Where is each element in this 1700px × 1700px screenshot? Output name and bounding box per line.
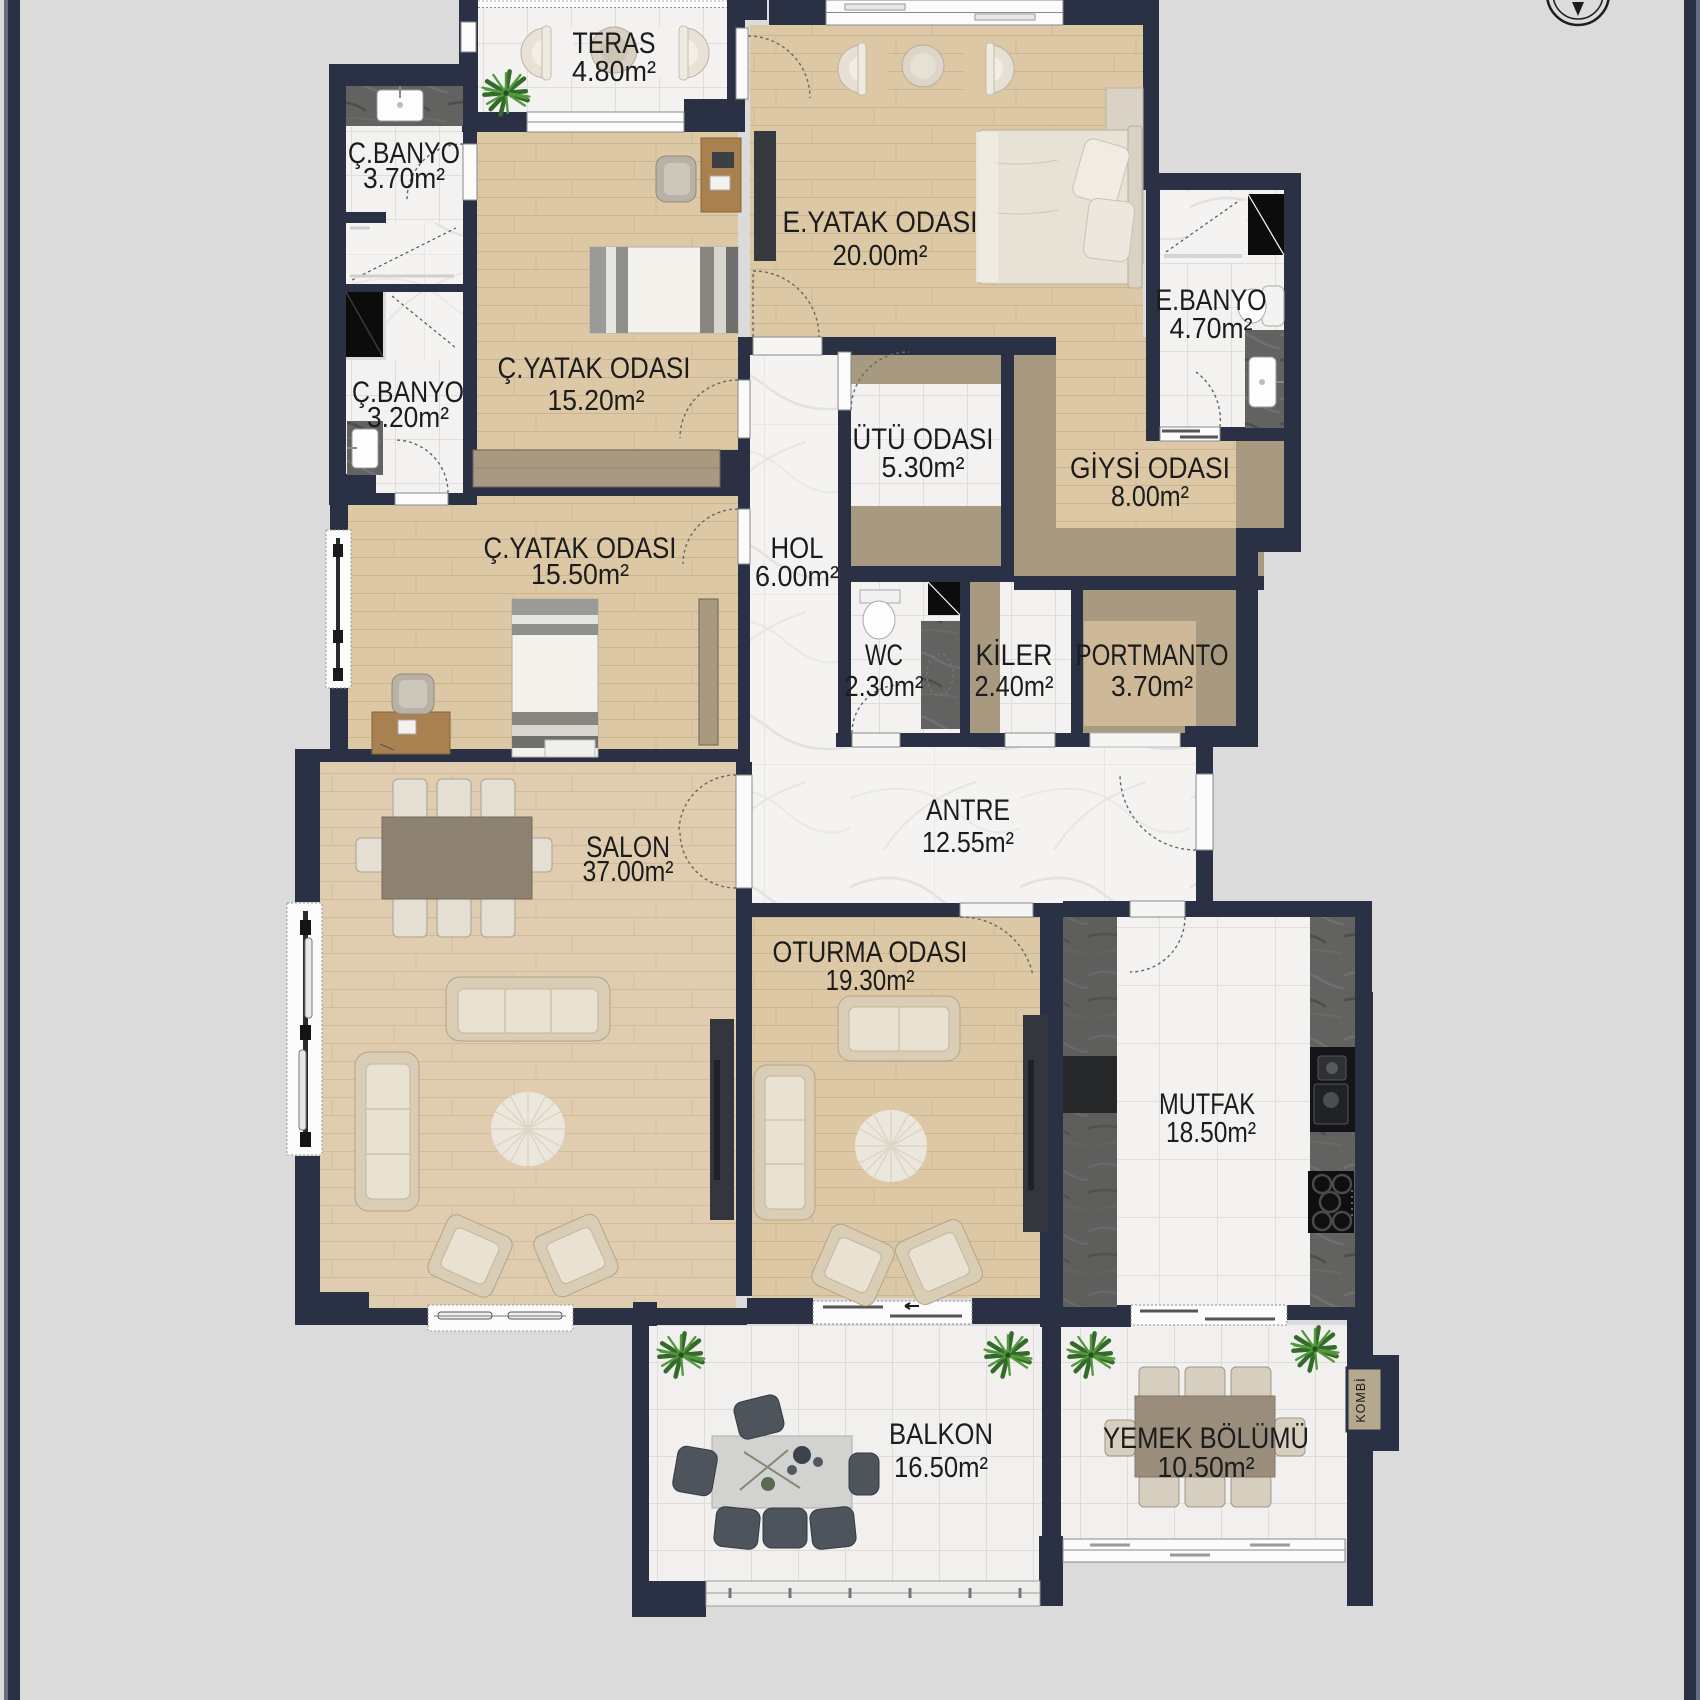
svg-text:37.00m²: 37.00m²: [583, 856, 674, 888]
svg-text:4.80m²: 4.80m²: [572, 56, 656, 88]
svg-text:WC: WC: [865, 639, 903, 672]
svg-text:15.20m²: 15.20m²: [548, 385, 645, 417]
svg-text:3.20m²: 3.20m²: [367, 402, 449, 434]
svg-text:3.70m²: 3.70m²: [1111, 671, 1193, 703]
svg-text:2.30m²: 2.30m²: [845, 671, 924, 703]
svg-text:4.70m²: 4.70m²: [1170, 313, 1253, 345]
svg-text:BALKON: BALKON: [889, 1418, 993, 1451]
svg-text:16.50m²: 16.50m²: [894, 1452, 988, 1484]
svg-text:5.30m²: 5.30m²: [882, 452, 965, 484]
svg-text:KOMBİ: KOMBİ: [1354, 1377, 1368, 1422]
svg-text:ANTRE: ANTRE: [926, 794, 1010, 827]
svg-text:8.00m²: 8.00m²: [1111, 481, 1189, 513]
svg-text:E.YATAK ODASI: E.YATAK ODASI: [783, 206, 978, 239]
svg-text:18.50m²: 18.50m²: [1166, 1117, 1256, 1149]
svg-text:19.30m²: 19.30m²: [826, 965, 915, 997]
svg-text:15.50m²: 15.50m²: [531, 559, 629, 591]
svg-text:KİLER: KİLER: [976, 639, 1053, 672]
svg-text:PORTMANTO: PORTMANTO: [1076, 639, 1229, 672]
svg-text:12.55m²: 12.55m²: [922, 827, 1014, 859]
svg-text:3.70m²: 3.70m²: [363, 163, 445, 195]
svg-text:2.40m²: 2.40m²: [975, 671, 1054, 703]
svg-text:6.00m²: 6.00m²: [755, 561, 839, 593]
svg-text:20.00m²: 20.00m²: [833, 240, 928, 272]
svg-text:Ç.YATAK ODASI: Ç.YATAK ODASI: [498, 352, 691, 385]
svg-text:YEMEK BÖLÜMÜ: YEMEK BÖLÜMÜ: [1103, 1422, 1309, 1455]
svg-text:10.50m²: 10.50m²: [1158, 1452, 1255, 1484]
